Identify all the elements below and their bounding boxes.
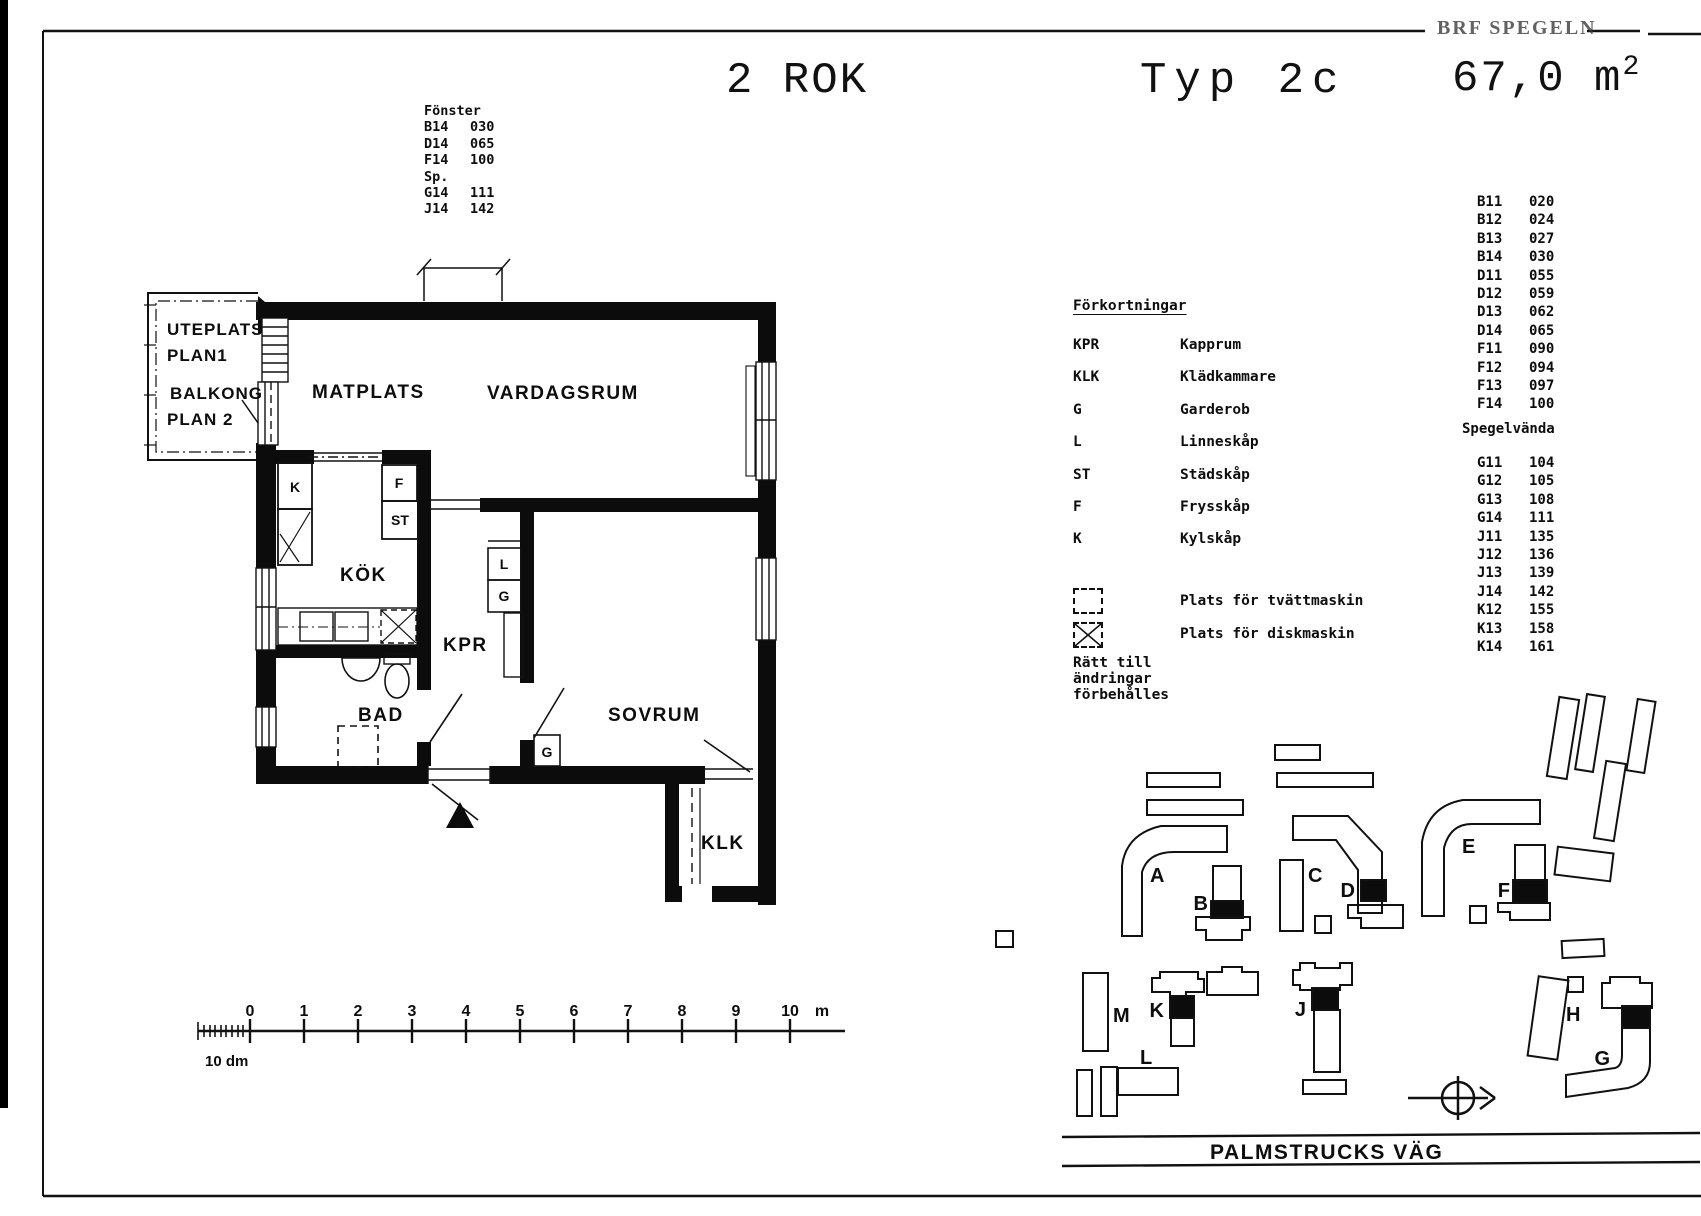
title-area-value: 67,0 m [1452,54,1622,104]
outdoor-label-uteplats: UTEPLATS [167,320,263,339]
fonster-row: J14142 [424,201,494,217]
legend-row: KKylskåp [1073,531,1241,547]
room-label-sovrum: SOVRUM [608,705,700,726]
building-label-e: E [1462,836,1475,858]
room-label-kpr: KPR [443,635,488,656]
title-rooms: 2 ROK [726,56,868,106]
building-label-h: H [1566,1004,1580,1026]
svg-text:9: 9 [732,1003,741,1020]
legend-heading: Förkortningar [1073,298,1187,314]
legend-row: KLKKlädkammare [1073,369,1276,385]
outdoor-label-plan2: PLAN 2 [167,410,233,429]
building-label-g: G [1594,1048,1610,1070]
title-type: Typ 2c [1140,56,1346,106]
room-label-klk: KLK [701,833,745,854]
svg-text:3: 3 [408,1003,417,1020]
outdoor-label-balkong: BALKONG [170,384,263,403]
unit-row: J12136 [1477,546,1554,564]
svg-text:10: 10 [781,1003,799,1020]
building-label-c: C [1308,865,1322,887]
unit-row: D11055 [1477,267,1554,285]
svg-text:8: 8 [678,1003,687,1020]
unit-row: J11135 [1477,528,1554,546]
room-label-vardagsrum: VARDAGSRUM [487,383,639,404]
unit-row: G11104 [1477,454,1554,472]
room-label-matplats: MATPLATS [312,382,425,403]
page-border [0,0,1701,1196]
cabinet-label-l: L [500,556,509,572]
sheet-artwork: MATPLATS VARDAGSRUM KÖK KPR BAD SOVRUM K… [0,0,1701,1216]
legend-row: FFrysskåp [1073,499,1250,515]
title-area: 67,0 m2 [1452,52,1639,104]
cabinet-label-st: ST [391,512,409,528]
mirror-unit-list: G11104 G12105 G13108 G14111 J11135 J1213… [1477,454,1554,656]
unit-row: B14030 [1477,248,1554,266]
svg-text:1: 1 [300,1003,309,1020]
floorplan-sheet: MATPLATS VARDAGSRUM KÖK KPR BAD SOVRUM K… [0,0,1701,1216]
scale-unit: m [815,1003,829,1020]
building-label-k: K [1150,1000,1165,1022]
entrance-arrow [446,802,474,828]
brand-header: BRF SPEGELN [1437,17,1597,40]
unit-row: K12155 [1477,601,1554,619]
building-label-j: J [1295,999,1306,1021]
legend-row: LLinneskåp [1073,434,1259,450]
legend-row-dishwasher: Plats för diskmaskin [1073,622,1355,652]
building-label-m: M [1113,1005,1130,1027]
unit-row: J14142 [1477,583,1554,601]
svg-text:4: 4 [462,1003,471,1020]
unit-row: J13139 [1477,564,1554,582]
legend-row-washer: Plats för tvättmaskin [1073,588,1363,618]
door-swings [430,688,750,820]
fonster-heading: Fönster [424,103,494,119]
scale-sub-label: 10 dm [205,1053,248,1070]
legend-note: Rätt till ändringar förbehålles [1073,655,1169,703]
fonster-row: Sp. [424,169,494,185]
fixtures [278,463,700,884]
unit-row: D12059 [1477,285,1554,303]
fonster-list: Fönster B14030 D14065 F14100 Sp. G14111 … [424,103,494,218]
dimension-mark [417,259,510,301]
mirror-heading: Spegelvända [1462,420,1555,438]
site-plan [996,694,1700,1166]
unit-row: F12094 [1477,359,1554,377]
unit-row: F11090 [1477,340,1554,358]
legend-row: GGarderob [1073,402,1250,418]
room-label-bad: BAD [358,705,404,726]
unit-row: B13027 [1477,230,1554,248]
street-name: PALMSTRUCKS VÄG [1210,1141,1443,1164]
svg-text:7: 7 [624,1003,633,1020]
unit-row: G12105 [1477,472,1554,490]
room-label-kok: KÖK [340,565,387,586]
building-label-b: B [1194,893,1208,915]
building-label-f: F [1498,880,1510,902]
cabinet-label-g-upper: G [499,588,510,604]
legend-row: STStädskåp [1073,467,1250,483]
balcony-outline [144,293,272,460]
svg-text:5: 5 [516,1003,525,1020]
scale-bar [198,1019,845,1043]
cabinet-label-g-sovrum: G [542,744,553,760]
unit-row: B12024 [1477,211,1554,229]
legend-row: KPRKapprum [1073,337,1241,353]
building-label-a: A [1150,865,1164,887]
unit-row: K13158 [1477,620,1554,638]
title-area-sup: 2 [1622,52,1639,83]
svg-text:0: 0 [246,1003,255,1020]
fonster-row: B14030 [424,119,494,135]
building-label-d: D [1341,880,1355,902]
outdoor-label-plan1: PLAN1 [167,346,228,365]
fonster-row: F14100 [424,152,494,168]
unit-row: D13062 [1477,303,1554,321]
unit-row: F13097 [1477,377,1554,395]
fonster-row: G14111 [424,185,494,201]
dishwasher-placement-icon [1073,622,1103,648]
svg-text:2: 2 [354,1003,363,1020]
cabinet-label-f: F [395,475,404,491]
unit-row: G14111 [1477,509,1554,527]
unit-row: K14161 [1477,638,1554,656]
fonster-row: D14065 [424,136,494,152]
site-building-labels: A B C D E F M K J L H G [1113,836,1610,1070]
unit-row: F14100 [1477,395,1554,413]
unit-number-list: B11020 B12024 B13027 B14030 D11055 D1205… [1477,193,1554,414]
cabinet-label-k: K [290,479,300,495]
unit-row: G13108 [1477,491,1554,509]
unit-row: B11020 [1477,193,1554,211]
floor-plan [144,259,776,905]
north-symbol [1408,1076,1495,1120]
unit-row: D14065 [1477,322,1554,340]
building-label-l: L [1140,1047,1152,1069]
svg-text:6: 6 [570,1003,579,1020]
washer-placement-icon [1073,588,1103,614]
